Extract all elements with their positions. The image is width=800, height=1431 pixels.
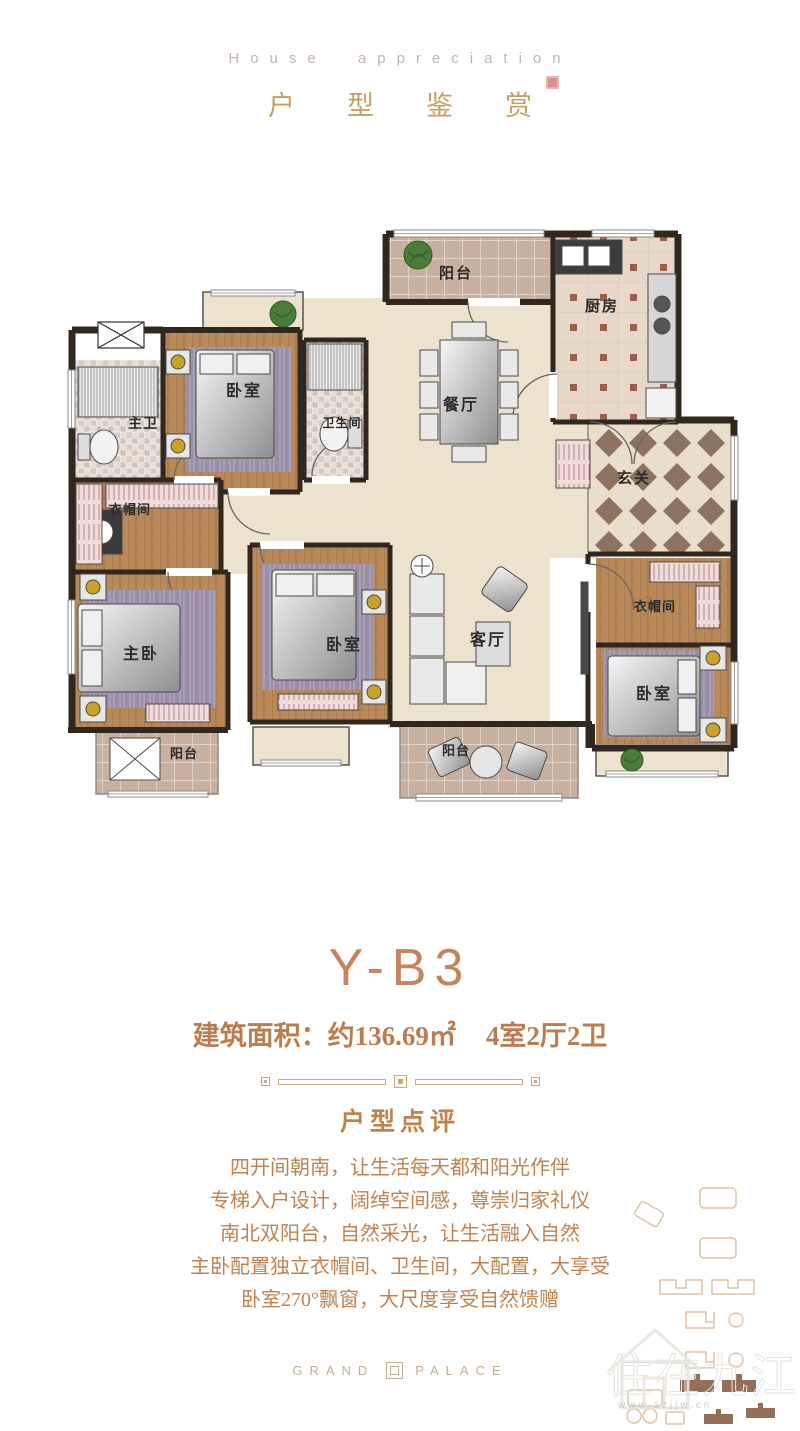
room-label-bathroom: 卫生间 — [322, 415, 361, 430]
floor-plan: 阳台 厨房 餐厅 玄关 卧室 主卫 卫生间 衣帽间 主卧 阳台 卧室 客厅 阳台… — [48, 222, 752, 812]
area-label: 建筑面积： — [193, 1021, 328, 1051]
header-subtitle-en: House appreciation — [0, 50, 800, 67]
site-watermark-logo-text: 住在九江 — [606, 1340, 798, 1406]
site-watermark-url: www.zzjjw.cn — [618, 1400, 712, 1411]
room-label-bedroom-nw: 卧室 — [226, 381, 262, 400]
room-label-master-bath: 主卫 — [128, 415, 158, 431]
unit-area-line: 建筑面积：约136.69㎡4室2厅2卫 — [0, 1014, 800, 1053]
brand-name-right: PALACE — [415, 1363, 507, 1378]
page-title: 户型鉴赏 — [0, 84, 800, 123]
room-label-balcony-north: 阳台 — [439, 264, 473, 282]
poster-page: House appreciation 户型鉴赏 — [0, 0, 800, 1431]
room-label-balcony-sw: 阳台 — [170, 746, 198, 761]
layout-value: 4室2厅2卫 — [486, 1021, 608, 1051]
ornament-divider — [0, 1075, 800, 1088]
divider-end-icon — [261, 1077, 270, 1086]
room-label-living: 客厅 — [470, 630, 506, 649]
brand-seal-icon — [386, 1362, 403, 1379]
elevator-shaft-icon — [98, 322, 144, 348]
brand-name-left: GRAND — [292, 1363, 374, 1378]
divider-end-icon — [531, 1077, 540, 1086]
divider-bar — [278, 1079, 386, 1085]
seal-stamp-icon — [546, 76, 559, 89]
divider-bar — [415, 1079, 523, 1085]
area-value: 约136.69㎡ — [328, 1021, 456, 1051]
room-label-master-bedroom: 主卧 — [123, 644, 159, 663]
divider-center-icon — [394, 1075, 407, 1088]
room-label-kitchen: 厨房 — [585, 297, 619, 315]
room-label-dining: 餐厅 — [442, 395, 479, 414]
room-label-entry: 玄关 — [617, 469, 651, 487]
room-label-balcony-south: 阳台 — [442, 743, 470, 758]
room-label-bedroom-south: 卧室 — [326, 635, 362, 654]
room-label-cloakroom-west: 衣帽间 — [109, 502, 151, 517]
unit-name: Y-B3 — [0, 938, 800, 998]
watermark-cluster: 住在九江 www.zzjjw.cn — [600, 1180, 800, 1430]
room-label-bedroom-se: 卧室 — [636, 684, 672, 703]
room-label-cloakroom-east: 衣帽间 — [634, 599, 676, 614]
review-heading: 户型点评 — [0, 1102, 800, 1138]
